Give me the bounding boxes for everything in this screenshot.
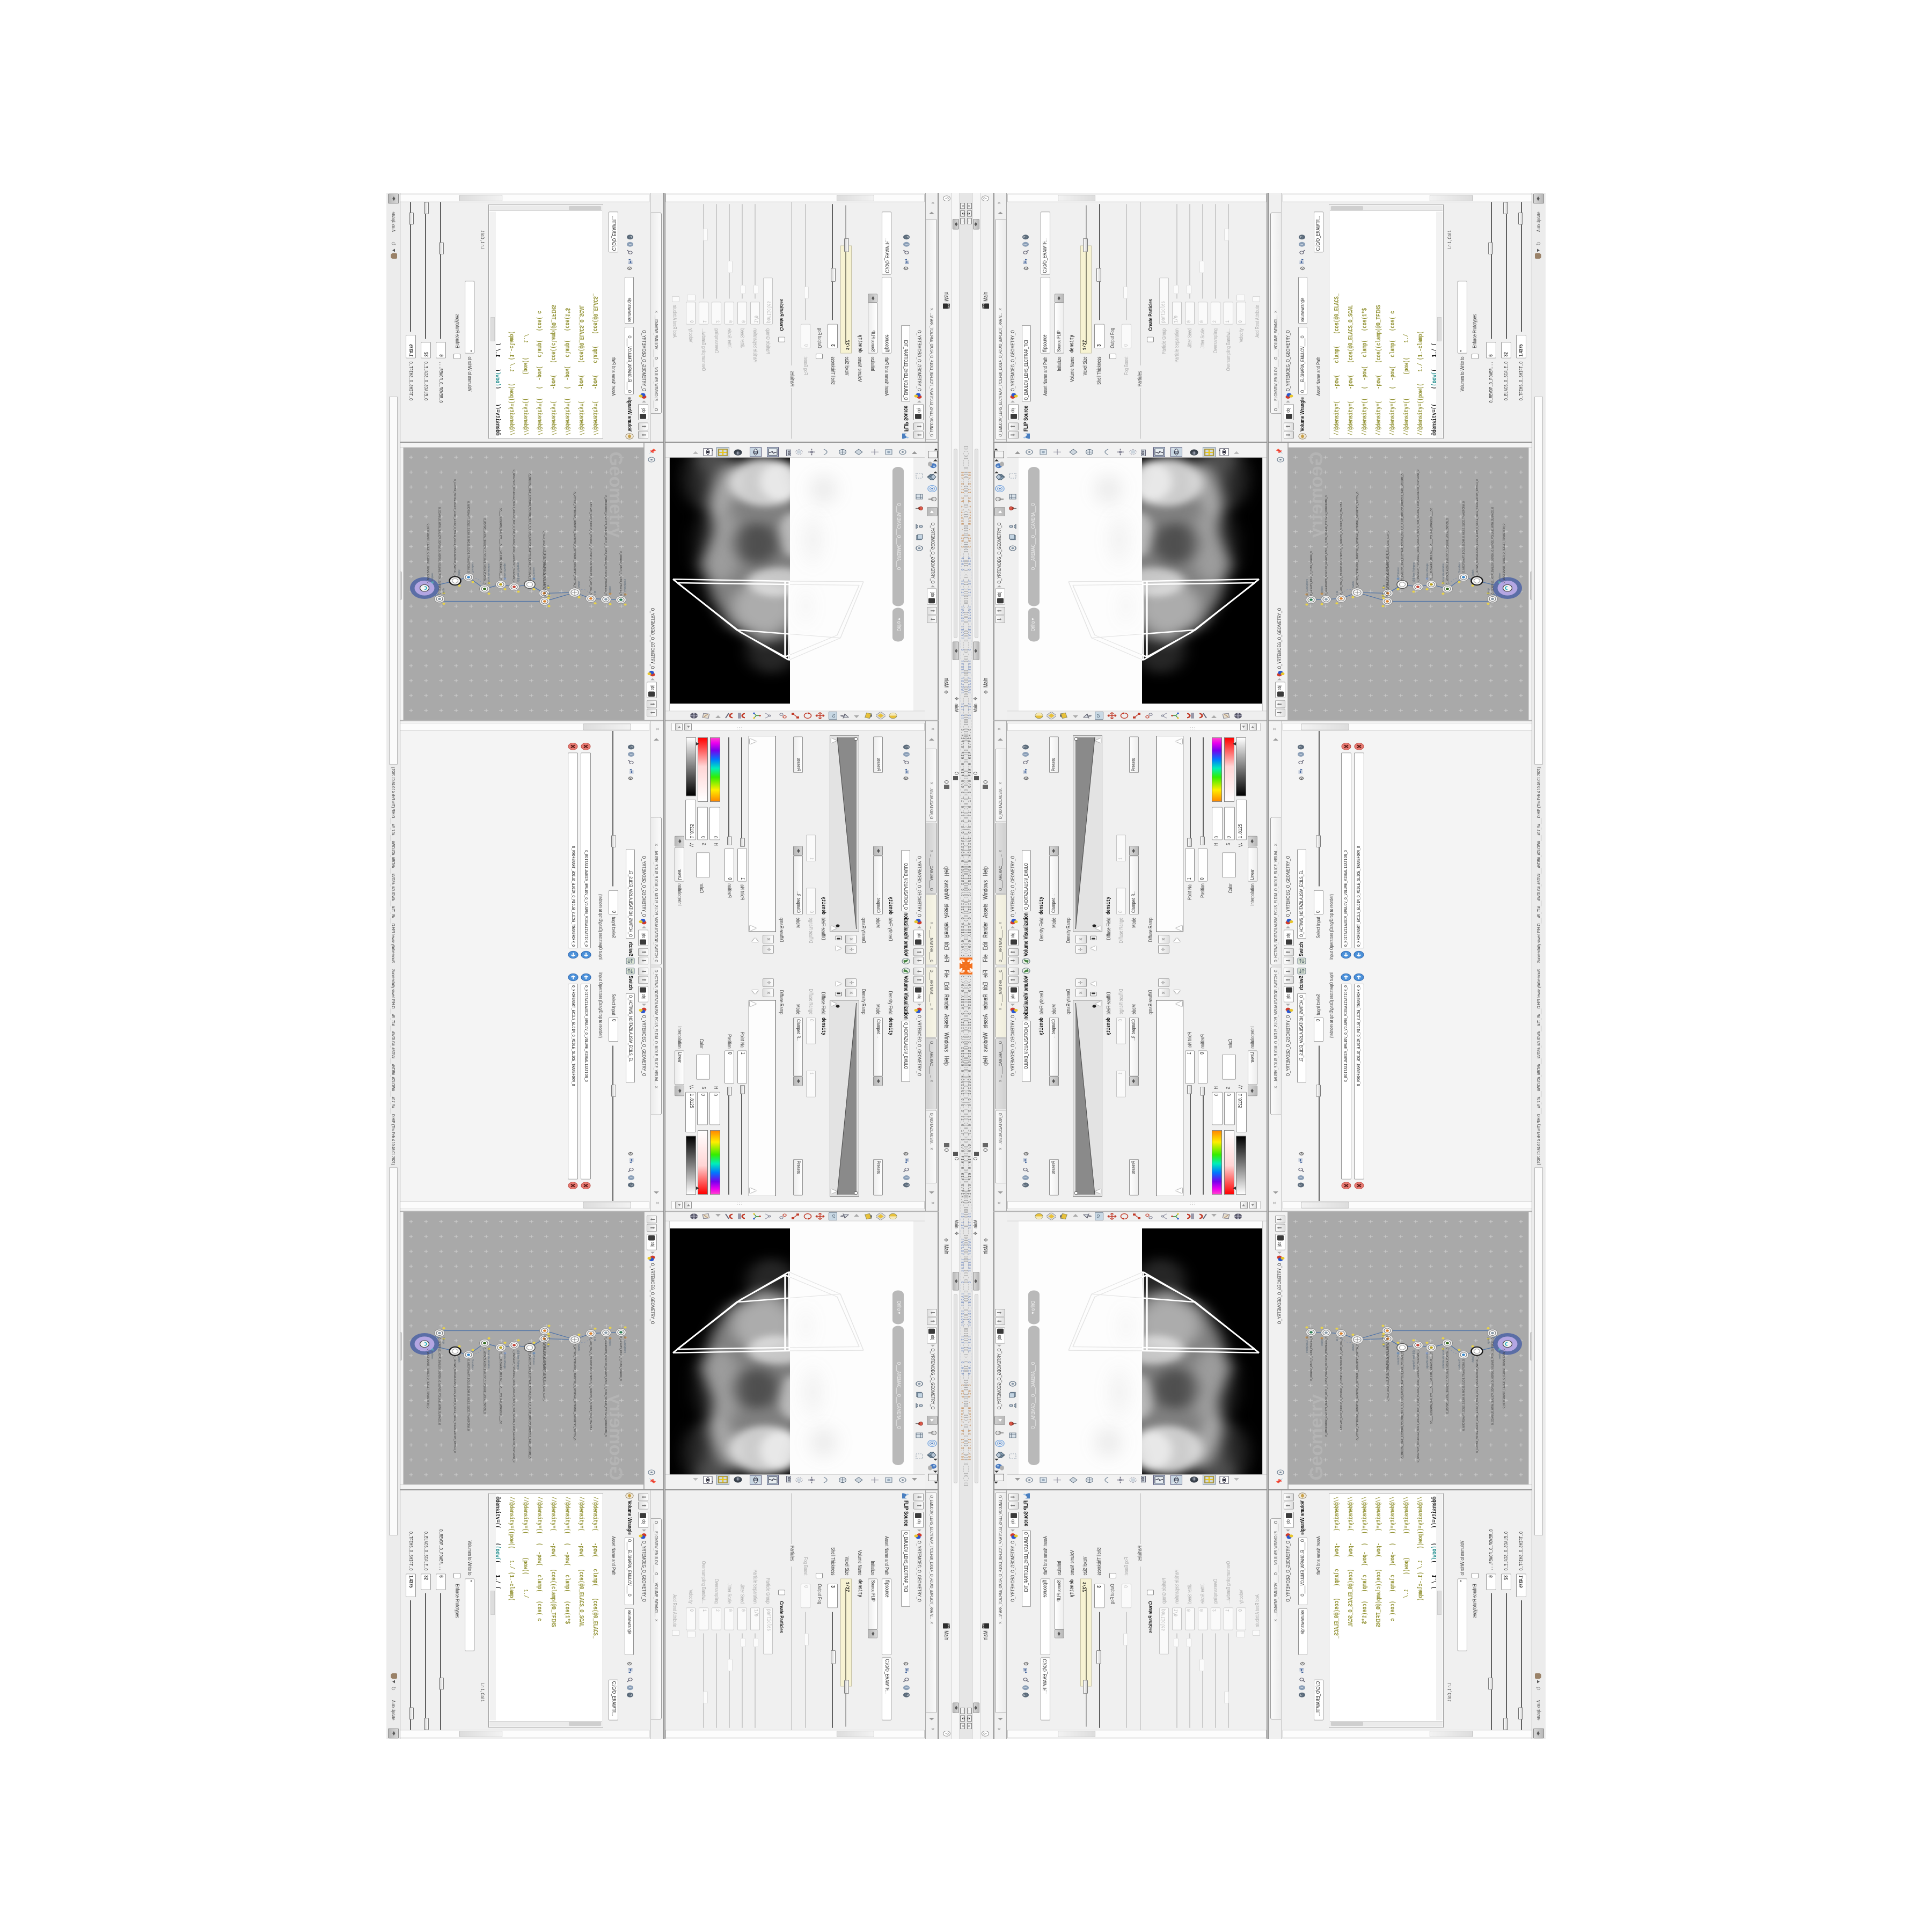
svg-text:O_EMULOV_LEHS_ELCITRAP_TICILPM: O_EMULOV_LEHS_ELCITRAP_TICILPMI_DIULF_O_… — [528, 473, 531, 580]
svg-text:Clip: Clip — [547, 1335, 551, 1340]
svg-text:O____ELGNARW_EMULOV____O____VO: O____ELGNARW_EMULOV____O____VOLUME_WRANG… — [499, 508, 502, 580]
svg-text:O_EREHPS_EBUC_O_CUBE_SPHERE_O: O_EREHPS_EBUC_O_CUBE_SPHERE_O — [619, 551, 623, 596]
svg-text:File: File — [1335, 591, 1339, 595]
svg-text:Merge: Merge — [1487, 1337, 1490, 1344]
svg-text:Clip: Clip — [1381, 1335, 1385, 1340]
svg-text:O_MROFSNART_ECILS_ELDIM_O_MIDL: O_MROFSNART_ECILS_ELDIM_O_MIDLE_SLICE_TR… — [1462, 501, 1466, 573]
svg-text:Volume Visualization: Volume Visualization — [1441, 563, 1445, 584]
svg-text:Transform: Transform — [1498, 1349, 1502, 1359]
svg-text:VDB from Polygons: VDB from Polygons — [516, 1350, 520, 1370]
svg-text:O_EMULOV_LEHS_ELCITRAP_TICILPM: O_EMULOV_LEHS_ELCITRAP_TICILPMI_DIULF_O_… — [1401, 1352, 1404, 1458]
svg-text:O_EMARFERIW_NOGYLOP_EREHPS_EBU: O_EMARFERIW_NOGYLOP_EREHPS_EBUC_O_CUBE_S… — [1324, 1337, 1328, 1437]
svg-text:PolyWire: PolyWire — [1320, 586, 1324, 595]
svg-text:O_ECAFRUS_HTIW_EMULOV_EGREM_O_: O_ECAFRUS_HTIW_EMULOV_EGREM_O_MERGE_VOLU… — [1491, 1337, 1495, 1425]
svg-text:Switch: Switch — [457, 569, 461, 576]
svg-text:Switch: Switch — [1471, 569, 1475, 576]
svg-text:Merge: Merge — [442, 588, 445, 595]
svg-text:O_PILC_DIRG_TUC_O_CUT_GRID_CLI: O_PILC_DIRG_TUC_O_CUT_GRID_CLIP_O — [543, 551, 546, 597]
svg-text:Transform: Transform — [1458, 562, 1461, 573]
svg-text:Merge: Merge — [1487, 588, 1490, 595]
svg-text:O_EMARFERIW_NOGYLOP_EREHPS_EBU: O_EMARFERIW_NOGYLOP_EREHPS_EBUC_O_CUBE_S… — [604, 495, 608, 595]
svg-text:FLIP Source: FLIP Source — [532, 1352, 536, 1365]
svg-text:O_EREHPS_EBUC_O_CUBE_SPHERE_O: O_EREHPS_EBUC_O_CUBE_SPHERE_O — [619, 1336, 623, 1381]
svg-text:O_MROFSNART_TLUSER_O_RESULT_TR: O_MROFSNART_TLUSER_O_RESULT_TRANSFORM_O — [426, 1349, 430, 1408]
svg-text:O_PILC_DIRG_TUC_O_CUT_GRID_CLI: O_PILC_DIRG_TUC_O_CUT_GRID_CLIP_O — [1386, 551, 1389, 597]
svg-text:an_CubeSphere: an_CubeSphere — [623, 1336, 627, 1353]
svg-text:Merge: Merge — [442, 1337, 445, 1344]
svg-text:O_SNOGLOP_YRTEMOEG_MORF_EMULOV: O_SNOGLOP_YRTEMOEG_MORF_EMULOV_BDV_O_VDB… — [512, 470, 516, 582]
svg-text:O_MROFSNART_TLUSER_O_RESULT_TR: O_MROFSNART_TLUSER_O_RESULT_TRANSFORM_O — [1502, 1349, 1506, 1408]
svg-text:O_ELIF_SDV_O_380.MD13.PET15.TE: O_ELIF_SDV_O_380.MD13.PET15.TEPOLS_O_GEN… — [1340, 502, 1343, 595]
svg-text:O_MROFSNART_TLUSER_O_RESULT_TR: O_MROFSNART_TLUSER_O_RESULT_TRANSFORM_O — [1502, 523, 1506, 583]
svg-text:PolyWire: PolyWire — [1320, 1337, 1324, 1346]
svg-text:File: File — [1335, 1337, 1339, 1341]
svg-text:Transform: Transform — [430, 573, 434, 583]
svg-text:an_CubeSphere: an_CubeSphere — [1305, 579, 1309, 596]
svg-text:Clip: Clip — [1382, 585, 1386, 589]
svg-text:O_EMARFERIW_NOGYLOP_EREHPS_EBU: O_EMARFERIW_NOGYLOP_EREHPS_EBUC_O_CUBE_S… — [1324, 495, 1328, 595]
svg-text:Transform: Transform — [1458, 1359, 1461, 1370]
svg-text:O_SNOGLOP_YRTEMOEG_MORF_EMULOV: O_SNOGLOP_YRTEMOEG_MORF_EMULOV_BDV_O_VDB… — [1416, 470, 1420, 582]
svg-text:O_NOITAZILAUSIV_EMULOV_O_VOLUM: O_NOITAZILAUSIV_EMULOV_O_VOLUME_VISUALIZ… — [1446, 1348, 1450, 1414]
svg-text:O_EMULOV_LEHS_ELCITRAP_TICILPM: O_EMULOV_LEHS_ELCITRAP_TICILPMI_DIULF_O_… — [1401, 473, 1404, 580]
svg-text:O_SNOGLOP_YRTEMOEG_MORF_EMULOV: O_SNOGLOP_YRTEMOEG_MORF_EMULOV_BDV_O_VDB… — [1416, 1350, 1420, 1462]
svg-text:Switch: Switch — [577, 581, 581, 588]
svg-text:O_HCTIWS_NOITAZILAUSIV_ECILS_E: O_HCTIWS_NOITAZILAUSIV_ECILS_ELDIM_O_MID… — [453, 1356, 457, 1453]
svg-text:O____ELGNARW_EMULOV____O____VO: O____ELGNARW_EMULOV____O____VOLUME_WRANG… — [1430, 1352, 1433, 1424]
svg-text:FLIP Source: FLIP Source — [532, 567, 536, 580]
svg-text:Volume Wrangle: Volume Wrangle — [1425, 1352, 1429, 1368]
svg-text:Volume Visualization: Volume Visualization — [1441, 1348, 1445, 1368]
svg-text:Geometry: Geometry — [1306, 452, 1327, 538]
svg-text:O_MROFSNART_ECILS_ELDIM_O_MIDL: O_MROFSNART_ECILS_ELDIM_O_MIDLE_SLICE_TR… — [1462, 1359, 1466, 1431]
svg-text:O_HCTIWS_NOITAZILAUSIV_ECILS_E: O_HCTIWS_NOITAZILAUSIV_ECILS_ELDIM_O_MID… — [1475, 479, 1479, 576]
svg-text:Clip: Clip — [546, 585, 550, 589]
svg-text:Transform: Transform — [471, 1359, 474, 1370]
svg-text:O_EMARFERIW_NOGYLOP_EREHPS_EBU: O_EMARFERIW_NOGYLOP_EREHPS_EBUC_O_CUBE_S… — [604, 1337, 608, 1437]
svg-text:Clip: Clip — [1382, 1343, 1386, 1348]
svg-text:VDB from Polygons: VDB from Polygons — [1412, 562, 1416, 583]
svg-text:Switch: Switch — [457, 1356, 461, 1363]
svg-text:O_NOITAZILAUSIV_EMULOV_O_VOLUM: O_NOITAZILAUSIV_EMULOV_O_VOLUME_VISUALIZ… — [1446, 518, 1450, 584]
svg-text:File: File — [593, 1337, 597, 1341]
svg-text:O_PILC_DIRG_TUC_O_CUT_GRID_CLI: O_PILC_DIRG_TUC_O_CUT_GRID_CLIP_O — [543, 1335, 546, 1382]
svg-text:Volume Visualization: Volume Visualization — [487, 563, 491, 584]
svg-text:an_CubeSphere: an_CubeSphere — [623, 579, 627, 596]
svg-text:O_HCTIWS_YRTEMOEG_LANRETXE_O_I: O_HCTIWS_YRTEMOEG_LANRETXE_O_INTERNAL_EX… — [1356, 1344, 1359, 1440]
svg-text:O_EREHPS_EBUC_O_CUBE_SPHERE_O: O_EREHPS_EBUC_O_CUBE_SPHERE_O — [1309, 1336, 1313, 1381]
svg-text:O_ELIF_SDV_O_380.MD13.PET15.TE: O_ELIF_SDV_O_380.MD13.PET15.TEPOLS_O_GEN… — [589, 502, 592, 595]
svg-text:FLIP Source: FLIP Source — [1396, 1352, 1400, 1365]
svg-text:O____ELGNARW_EMULOV____O____VO: O____ELGNARW_EMULOV____O____VOLUME_WRANG… — [499, 1352, 502, 1424]
svg-text:O_HCTIWS_NOITAZILAUSIV_ECILS_E: O_HCTIWS_NOITAZILAUSIV_ECILS_ELDIM_O_MID… — [453, 479, 457, 576]
svg-text:O_ECAFRUS_HTIW_EMULOV_EGREM_O_: O_ECAFRUS_HTIW_EMULOV_EGREM_O_MERGE_VOLU… — [1491, 507, 1495, 595]
svg-text:O_HCTIWS_NOITAZILAUSIV_ECILS_E: O_HCTIWS_NOITAZILAUSIV_ECILS_ELDIM_O_MID… — [1475, 1356, 1479, 1453]
svg-text:Switch: Switch — [1351, 581, 1355, 588]
svg-text:File: File — [593, 591, 597, 595]
svg-text:Geometry: Geometry — [605, 452, 626, 538]
svg-text:Volume Wrangle: Volume Wrangle — [503, 1352, 507, 1368]
svg-text:VDB from Polygons: VDB from Polygons — [1412, 1350, 1416, 1370]
svg-text:O_HCTIWS_YRTEMOEG_LANRETXE_O_I: O_HCTIWS_YRTEMOEG_LANRETXE_O_INTERNAL_EX… — [573, 1344, 576, 1440]
svg-text:Clip: Clip — [547, 593, 551, 597]
svg-text:Switch: Switch — [1351, 1344, 1355, 1351]
svg-text:Clip: Clip — [1381, 593, 1385, 597]
svg-text:O_ECAFRUS_HTIW_EMULOV_EGREM_O_: O_ECAFRUS_HTIW_EMULOV_EGREM_O_MERGE_VOLU… — [437, 507, 441, 595]
svg-text:FLIP Source: FLIP Source — [1396, 567, 1400, 580]
svg-text:O_ELIF_SDV_O_380.MD13.PET15.TE: O_ELIF_SDV_O_380.MD13.PET15.TEPOLS_O_GEN… — [589, 1337, 592, 1430]
svg-text:Geometry: Geometry — [1306, 1394, 1327, 1481]
svg-text:O____ELGNARW_EMULOV____O____VO: O____ELGNARW_EMULOV____O____VOLUME_WRANG… — [1430, 508, 1433, 580]
svg-text:Transform: Transform — [430, 1349, 434, 1359]
svg-text:Volume Wrangle: Volume Wrangle — [503, 563, 507, 580]
svg-text:O_MROFSNART_ECILS_ELDIM_O_MIDL: O_MROFSNART_ECILS_ELDIM_O_MIDLE_SLICE_TR… — [466, 501, 470, 573]
svg-text:O_NOITAZILAUSIV_EMULOV_O_VOLUM: O_NOITAZILAUSIV_EMULOV_O_VOLUME_VISUALIZ… — [482, 518, 486, 584]
svg-text:O_SNOGLOP_YRTEMOEG_MORF_EMULOV: O_SNOGLOP_YRTEMOEG_MORF_EMULOV_BDV_O_VDB… — [512, 1350, 516, 1462]
svg-text:Switch: Switch — [577, 1344, 581, 1351]
svg-text:O_HCTIWS_YRTEMOEG_LANRETXE_O_I: O_HCTIWS_YRTEMOEG_LANRETXE_O_INTERNAL_EX… — [573, 492, 576, 588]
svg-text:O_PILC_DIRG_TUC_O_CUT_GRID_CLI: O_PILC_DIRG_TUC_O_CUT_GRID_CLIP_O — [1386, 1335, 1389, 1382]
svg-text:VDB from Polygons: VDB from Polygons — [516, 562, 520, 583]
svg-text:Clip: Clip — [546, 1343, 550, 1348]
svg-text:PolyWire: PolyWire — [608, 1337, 612, 1346]
svg-text:PolyWire: PolyWire — [608, 586, 612, 595]
svg-text:Transform: Transform — [471, 562, 474, 573]
svg-text:an_CubeSphere: an_CubeSphere — [1305, 1336, 1309, 1353]
svg-text:O_MROFSNART_TLUSER_O_RESULT_TR: O_MROFSNART_TLUSER_O_RESULT_TRANSFORM_O — [426, 523, 430, 583]
svg-text:O_EREHPS_EBUC_O_CUBE_SPHERE_O: O_EREHPS_EBUC_O_CUBE_SPHERE_O — [1309, 551, 1313, 596]
svg-text:O_ELIF_SDV_O_380.MD13.PET15.TE: O_ELIF_SDV_O_380.MD13.PET15.TEPOLS_O_GEN… — [1340, 1337, 1343, 1430]
svg-text:O_ECAFRUS_HTIW_EMULOV_EGREM_O_: O_ECAFRUS_HTIW_EMULOV_EGREM_O_MERGE_VOLU… — [437, 1337, 441, 1425]
svg-text:O_HCTIWS_YRTEMOEG_LANRETXE_O_I: O_HCTIWS_YRTEMOEG_LANRETXE_O_INTERNAL_EX… — [1356, 492, 1359, 588]
svg-text:O_EMULOV_LEHS_ELCITRAP_TICILPM: O_EMULOV_LEHS_ELCITRAP_TICILPMI_DIULF_O_… — [528, 1352, 531, 1458]
svg-text:O_MROFSNART_ECILS_ELDIM_O_MIDL: O_MROFSNART_ECILS_ELDIM_O_MIDLE_SLICE_TR… — [466, 1359, 470, 1431]
svg-text:Volume Visualization: Volume Visualization — [487, 1348, 491, 1368]
svg-text:Geometry: Geometry — [605, 1394, 626, 1481]
svg-text:Transform: Transform — [1498, 573, 1502, 583]
svg-text:O_NOITAZILAUSIV_EMULOV_O_VOLUM: O_NOITAZILAUSIV_EMULOV_O_VOLUME_VISUALIZ… — [482, 1348, 486, 1414]
svg-text:Volume Wrangle: Volume Wrangle — [1425, 563, 1429, 580]
svg-text:Switch: Switch — [1471, 1356, 1475, 1363]
